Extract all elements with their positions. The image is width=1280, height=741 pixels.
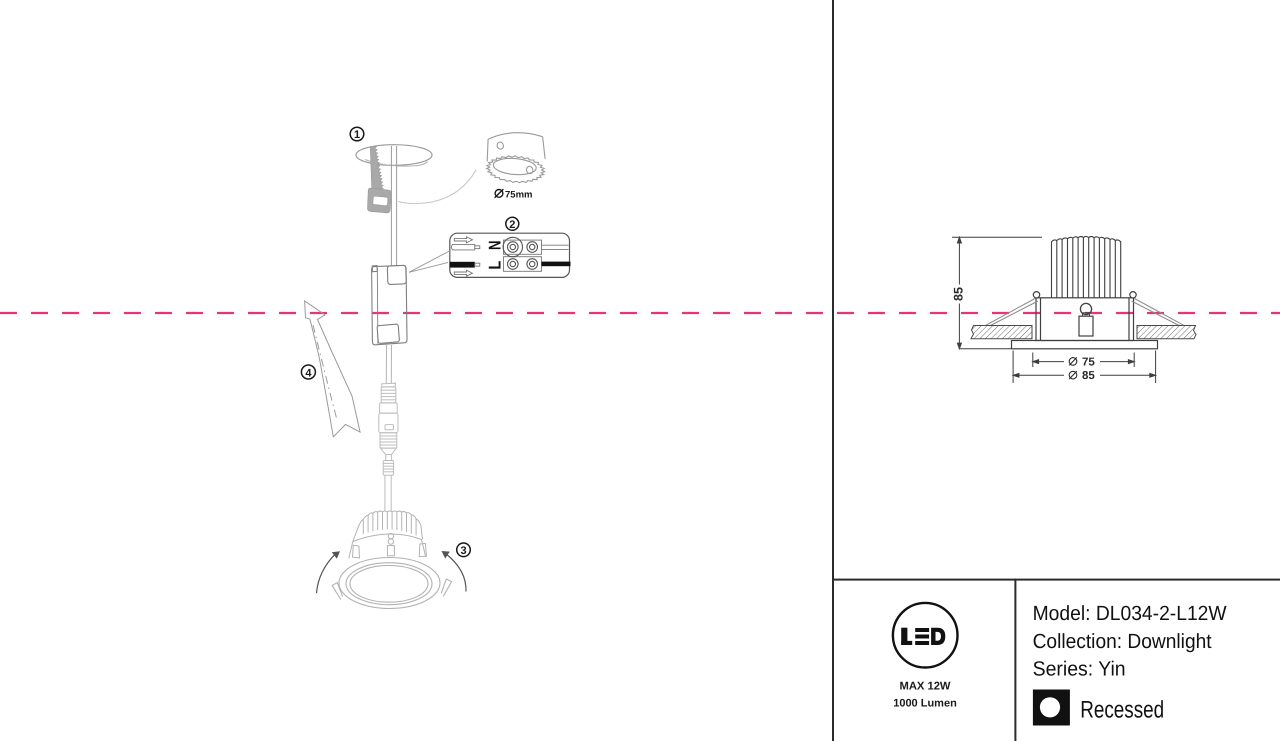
svg-text:3: 3 (460, 545, 466, 557)
svg-text:L: L (486, 261, 505, 270)
svg-text:2: 2 (509, 219, 515, 231)
svg-text:N: N (485, 241, 504, 251)
svg-text:85: 85 (1082, 370, 1095, 382)
svg-text:Series: Yin: Series: Yin (1033, 658, 1126, 681)
svg-text:Collection: Downlight: Collection: Downlight (1033, 630, 1212, 653)
svg-text:MAX 12W: MAX 12W (900, 680, 951, 692)
svg-text:1000 Lumen: 1000 Lumen (893, 697, 957, 709)
svg-text:Model: DL034-2-L12W: Model: DL034-2-L12W (1033, 602, 1228, 625)
svg-text:4: 4 (305, 367, 312, 379)
svg-text:75: 75 (1082, 356, 1095, 368)
svg-text:85: 85 (952, 287, 966, 301)
svg-text:1: 1 (354, 129, 360, 141)
svg-text:Recessed: Recessed (1080, 697, 1164, 724)
svg-text:75mm: 75mm (505, 189, 532, 200)
